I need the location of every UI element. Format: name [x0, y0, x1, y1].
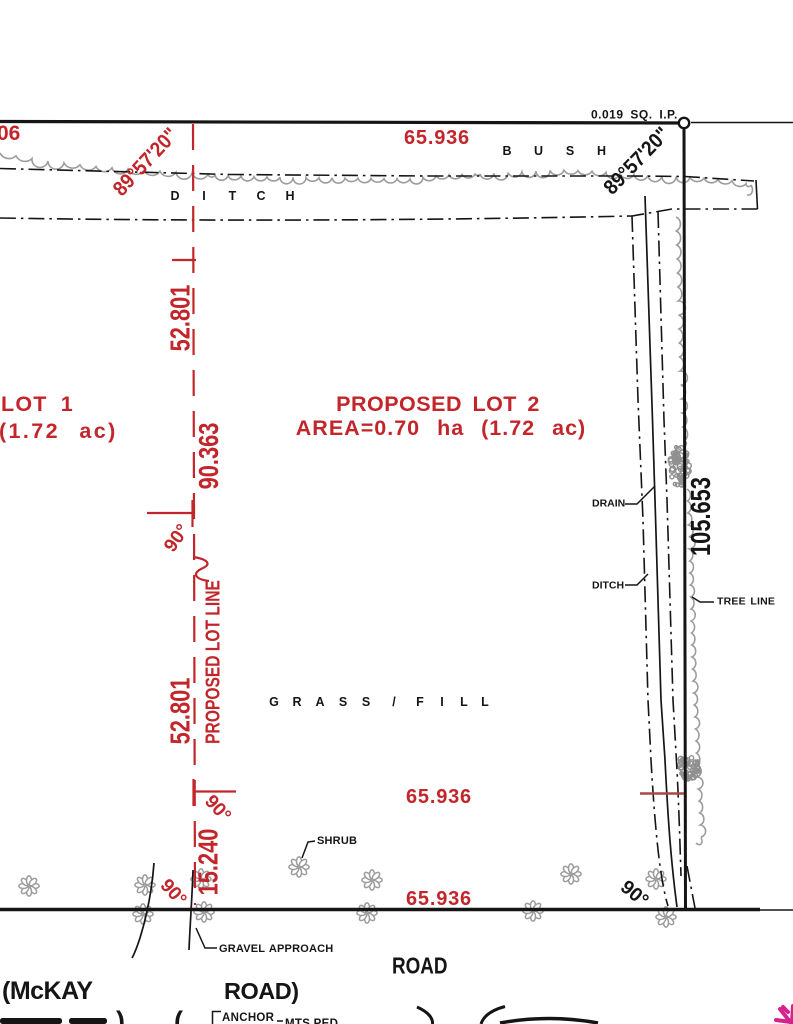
svg-text:PROPOSED LOT 2: PROPOSED LOT 2 [336, 392, 540, 416]
svg-text:52.801: 52.801 [165, 678, 196, 745]
svg-text:H: H [285, 189, 294, 203]
svg-text:ROAD: ROAD [392, 954, 447, 979]
svg-text:D: D [170, 189, 179, 203]
svg-text:LOT 1: LOT 1 [1, 392, 74, 416]
svg-text:F: F [416, 695, 424, 709]
svg-text:ROAD): ROAD) [224, 978, 299, 1004]
svg-text:S: S [566, 144, 574, 158]
svg-text:MTS PED: MTS PED [285, 1018, 338, 1024]
svg-text:I: I [440, 695, 443, 709]
svg-text:06: 06 [0, 122, 20, 145]
svg-text:(1.72 ac): (1.72 ac) [0, 419, 118, 443]
svg-text:H: H [597, 144, 606, 158]
svg-text:89°57'20": 89°57'20" [599, 123, 674, 200]
svg-text:A: A [315, 695, 324, 709]
svg-text:65.936: 65.936 [406, 888, 472, 910]
svg-text:/: / [392, 695, 396, 709]
svg-text:DRAIN: DRAIN [592, 498, 625, 510]
svg-text:S: S [339, 695, 347, 709]
svg-text:65.936: 65.936 [404, 127, 470, 149]
svg-text:DITCH: DITCH [592, 580, 624, 592]
svg-text:GRAVEL APPROACH: GRAVEL APPROACH [219, 943, 333, 955]
svg-text:52.801: 52.801 [165, 285, 196, 352]
svg-text:90.363: 90.363 [193, 423, 224, 490]
svg-text:U: U [534, 144, 543, 158]
svg-text:15.240: 15.240 [193, 829, 224, 896]
svg-text:(McKAY: (McKAY [2, 977, 93, 1005]
svg-text:L: L [481, 695, 489, 709]
svg-text:R: R [292, 695, 301, 709]
svg-text:S: S [362, 695, 370, 709]
svg-text:65.936: 65.936 [406, 786, 472, 808]
svg-text:90°: 90° [200, 791, 235, 826]
svg-text:(: ( [174, 1006, 183, 1024]
svg-text:B: B [502, 144, 511, 158]
svg-text:L: L [460, 695, 468, 709]
svg-text:TREE LINE: TREE LINE [717, 596, 775, 608]
svg-text:C: C [256, 189, 265, 203]
svg-text:G: G [269, 695, 279, 709]
svg-text:PROPOSED LOT LINE: PROPOSED LOT LINE [202, 580, 224, 744]
svg-text:): ) [116, 1006, 125, 1024]
svg-text:ANCHOR: ANCHOR [222, 1012, 275, 1024]
svg-text:T: T [229, 189, 237, 203]
svg-text:90°: 90° [160, 521, 194, 557]
svg-text:105.653: 105.653 [685, 477, 716, 556]
svg-text:0.019 SQ. I.P.: 0.019 SQ. I.P. [591, 108, 678, 122]
svg-text:AREA=0.70 ha (1.72 ac): AREA=0.70 ha (1.72 ac) [296, 416, 586, 440]
svg-text:90°: 90° [156, 875, 191, 910]
svg-text:I: I [202, 189, 205, 203]
svg-text:SHRUB: SHRUB [317, 835, 357, 847]
